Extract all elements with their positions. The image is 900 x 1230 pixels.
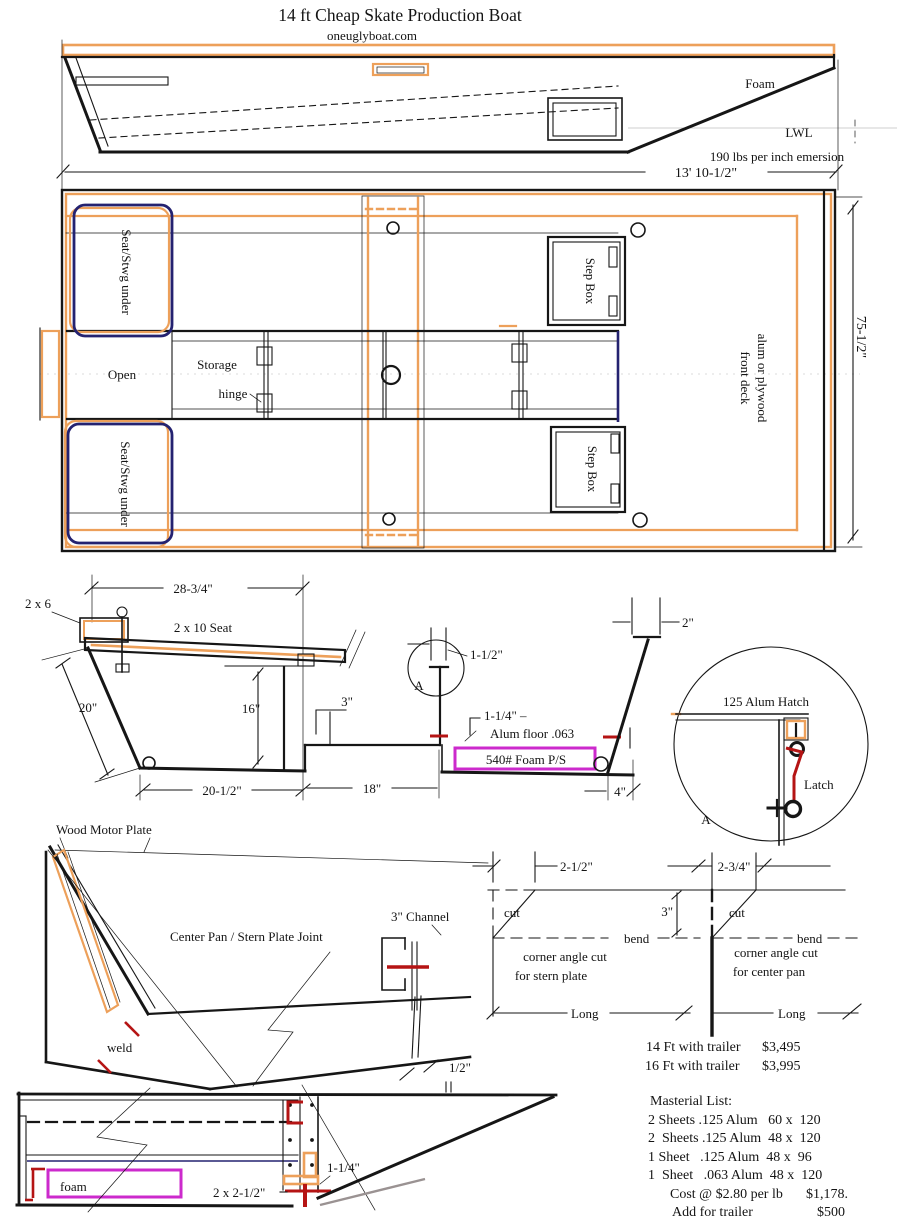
hatch-detail-circle: 125 Alum Hatch Latch A: [672, 647, 868, 845]
lip-dim-label: 1-1/4" –: [484, 708, 527, 723]
material-item: 2 Sheets .125 Alum 60 x 120: [648, 1113, 821, 1128]
foam-ps-label: 540# Foam P/S: [486, 752, 566, 767]
stern-offset-dim: 2-1/2": [560, 859, 593, 874]
boat-plan-page: 14 ft Cheap Skate Production Boat oneugl…: [0, 0, 900, 1230]
trailer-cost-label: Add for trailer: [672, 1205, 753, 1220]
foam-label: Foam: [745, 76, 775, 91]
stern-caption-2: for stern plate: [515, 968, 587, 983]
boat-plan-drawing: 14 ft Cheap Skate Production Boat oneugl…: [0, 0, 900, 1230]
material-item: 2 Sheets .125 Alum 48 x 120: [648, 1131, 821, 1146]
channel-dim-label: 1-1/4": [327, 1160, 360, 1175]
stern-foam-label: foam: [60, 1179, 87, 1194]
price-value-14ft: $3,495: [762, 1040, 801, 1055]
trailer-cost-value: $500: [817, 1205, 845, 1220]
bottom-dim-label: 20-1/2": [202, 783, 241, 798]
corner-cut-center-pan: 2-3/4" cut bend corner angle cut for cen…: [668, 853, 862, 1035]
depth-16-dim: 16": [242, 701, 260, 716]
hinge-label: hinge: [219, 386, 248, 401]
pan-cut-label: cut: [729, 905, 745, 920]
joint-label: Center Pan / Stern Plate Joint: [170, 929, 323, 944]
side-20-dim: 20": [79, 700, 97, 715]
recess-dim-label: 4": [614, 784, 626, 799]
front-deck-label-1: front deck: [738, 351, 753, 405]
length-dim-label: 13' 10-1/2": [675, 166, 737, 181]
pan-long-label: Long: [778, 1006, 806, 1021]
seat-2x10-label: 2 x 10 Seat: [174, 620, 233, 635]
material-list-heading: Masterial List:: [650, 1094, 732, 1109]
stern-bend-label: bend: [624, 931, 650, 946]
hatch-label: 125 Alum Hatch: [723, 694, 809, 709]
storage-label: Storage: [197, 357, 237, 372]
side-view-profile: Foam LWL 190 lbs per inch emersion: [62, 45, 897, 164]
emersion-note: 190 lbs per inch emersion: [710, 149, 845, 164]
material-cost-label: Cost @ $2.80 per lb: [670, 1187, 783, 1202]
material-item: 1 Sheet .125 Alum 48 x 96: [648, 1150, 812, 1165]
cross-section-view: 28-3/4" 2 x 6 2 x 10 Seat 20": [25, 575, 694, 800]
stern-depth-dim: 3": [661, 904, 673, 919]
title-block: 14 ft Cheap Skate Production Boat oneugl…: [278, 5, 522, 43]
price-item-14ft: 14 Ft with trailer: [646, 1040, 741, 1055]
seat-front-label: Seat/Stwg under: [119, 229, 134, 315]
motor-plate-label: Wood Motor Plate: [56, 822, 152, 837]
corner-cut-stern-plate: 2-1/2" cut bend 3" corner angle cut for …: [473, 852, 845, 1021]
material-item: 1 Sheet .063 Alum 48 x 120: [648, 1168, 822, 1183]
website-label: oneuglyboat.com: [327, 28, 417, 43]
pan-offset-dim: 2-3/4": [718, 859, 751, 874]
price-list: 14 Ft with trailer $3,495 16 Ft with tra…: [645, 1040, 801, 1074]
step-box-rear-label: Step Box: [585, 446, 599, 493]
latch-label: Latch: [804, 777, 834, 792]
pan-bend-label: bend: [797, 931, 823, 946]
stern-caption-1: corner angle cut: [523, 949, 607, 964]
gap-dim-label: 1/2": [449, 1060, 471, 1075]
frame-dim-label: 2 x 2-1/2": [213, 1185, 265, 1200]
channel-label: 3" Channel: [391, 909, 450, 924]
front-deck-label-2: alum or plywood: [755, 334, 770, 423]
length-dimension: 13' 10-1/2": [57, 40, 842, 190]
hatch-detail-a-marker: A: [701, 812, 711, 827]
rib-dim-label: 1-1/2": [470, 647, 503, 662]
step-3-dim: 3": [341, 694, 353, 709]
step-box-front-label: Step Box: [583, 258, 597, 305]
price-item-16ft: 16 Ft with trailer: [645, 1059, 740, 1074]
gunwale-2-dim: 2": [682, 615, 694, 630]
cleat-2x6-label: 2 x 6: [25, 596, 52, 611]
material-list: Masterial List: 2 Sheets .125 Alum 60 x …: [648, 1094, 848, 1220]
seat-rear-label: Seat/Stwg under: [118, 441, 133, 527]
detail-a-marker: A: [414, 678, 424, 693]
alum-floor-label: Alum floor .063: [490, 726, 574, 741]
seat-width-dim: 28-3/4": [173, 581, 212, 596]
pan-caption-2: for center pan: [733, 964, 806, 979]
plan-view: Seat/Stwg under Seat/Stwg under Step Box…: [40, 190, 868, 551]
stern-joint-detail: Wood Motor Plate weld Center Pan / Stern…: [46, 822, 488, 1089]
weld-label: weld: [107, 1040, 133, 1055]
stern-cut-label: cut: [504, 905, 520, 920]
floor-dim-label: 18": [363, 781, 381, 796]
lwl-label: LWL: [785, 125, 812, 140]
material-cost-value: $1,178.: [806, 1187, 848, 1202]
price-value-16ft: $3,995: [762, 1059, 801, 1074]
open-label: Open: [108, 367, 137, 382]
stern-long-label: Long: [571, 1006, 599, 1021]
pan-caption-1: corner angle cut: [734, 945, 818, 960]
beam-dim-label: 75-1/2": [853, 316, 868, 358]
page-title: 14 ft Cheap Skate Production Boat: [278, 5, 522, 25]
stern-side-view: foam 2 x 2-1/2" 1-1/4": [17, 1082, 556, 1212]
